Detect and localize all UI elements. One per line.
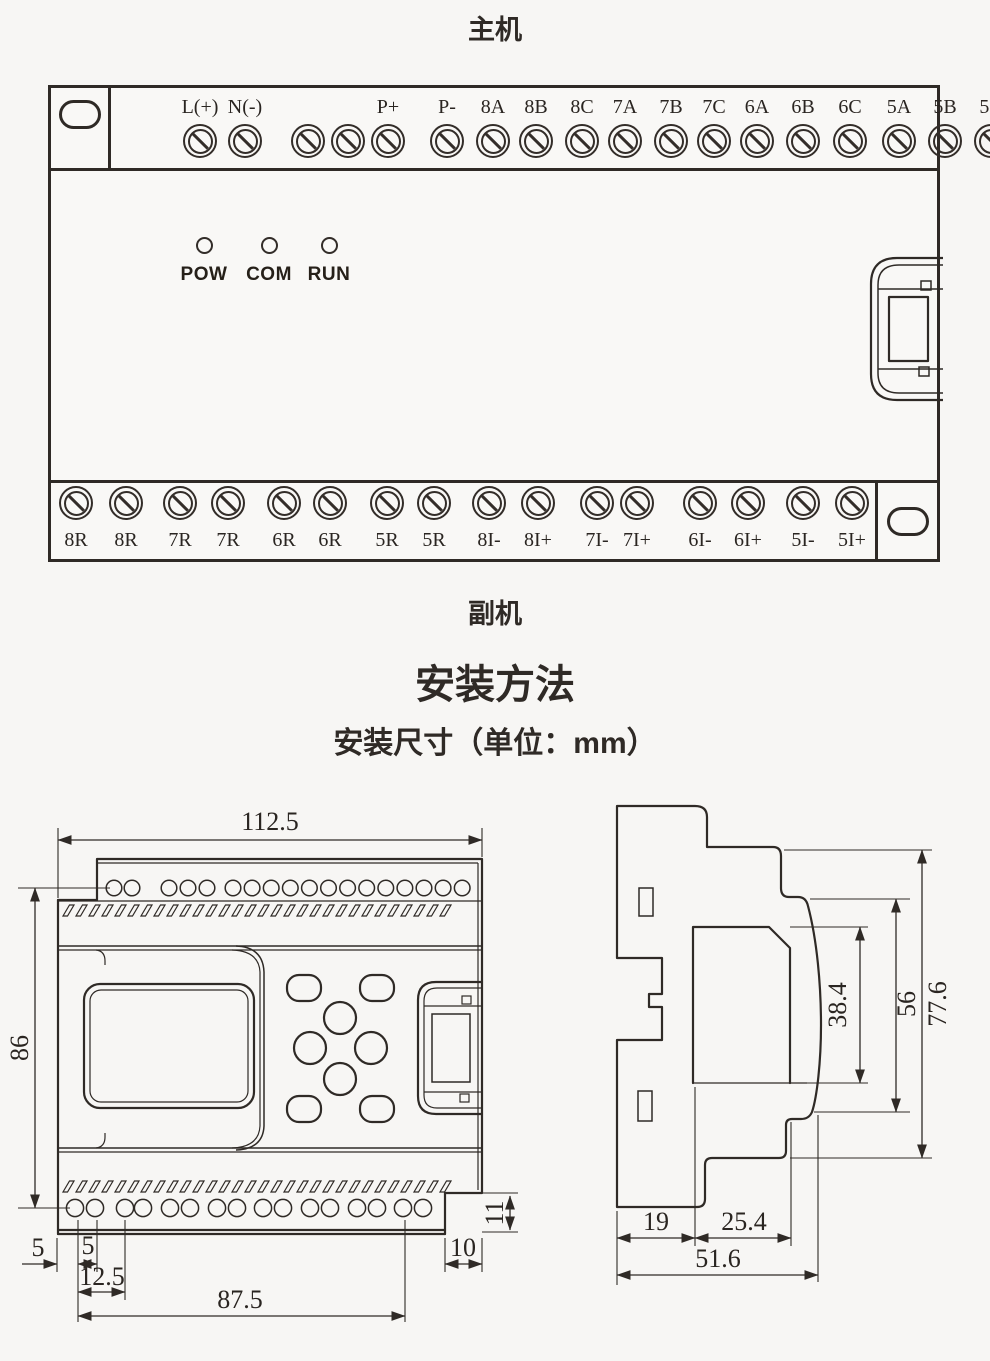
- screw-terminal-icon: [974, 124, 990, 158]
- mount-tab-right: [875, 483, 937, 559]
- terminal-top-6C: 6C: [828, 90, 872, 158]
- terminal-top-7C: 7C: [692, 90, 736, 158]
- dim-height: 86: [10, 888, 110, 1208]
- screw-terminal-icon: [835, 486, 869, 520]
- svg-text:56: 56: [892, 991, 921, 1017]
- terminal-top-6A: 6A: [735, 90, 779, 158]
- dim-depth-group: 19 25.4 51.6: [617, 1087, 818, 1285]
- screw-terminal-icon: [183, 124, 217, 158]
- terminal-bottom-7I+: 7I+: [615, 486, 659, 555]
- led-indicator-pow: POW: [172, 237, 236, 286]
- screw-terminal-icon: [267, 486, 301, 520]
- panel-body: POWCOMRUN: [51, 171, 937, 480]
- terminal-label: 8R: [114, 523, 137, 555]
- terminal-label: 7I-: [585, 523, 608, 555]
- screw-terminal-icon: [211, 486, 245, 520]
- led-label: COM: [246, 264, 292, 286]
- terminal-label: 8I-: [477, 523, 500, 555]
- terminal-bottom-6I-: 6I-: [678, 486, 722, 555]
- svg-text:11: 11: [480, 1200, 509, 1225]
- front-connector: [418, 982, 482, 1114]
- screw-terminal-icon: [683, 486, 717, 520]
- terminal-top-nc: [326, 90, 370, 158]
- led-circle-icon: [261, 237, 278, 254]
- keypad-button: [287, 1096, 321, 1122]
- top-terminal-strip: L(+)N(-)P+P-8A8B8C7A7B7C6A6B6C5A5B5C: [51, 88, 937, 171]
- terminal-bottom-5R: 5R: [365, 486, 409, 555]
- terminal-label: 6R: [272, 523, 295, 555]
- keypad-button: [294, 1032, 326, 1064]
- screw-terminal-icon: [882, 124, 916, 158]
- terminal-label: 7B: [659, 90, 682, 122]
- svg-text:112.5: 112.5: [241, 807, 299, 836]
- terminal-bottom-7R: 7R: [206, 486, 250, 555]
- terminal-bottom-8R: 8R: [54, 486, 98, 555]
- side-view-dimension-drawing: 38.4 56 77.6 19 25.4 51.6: [590, 795, 990, 1361]
- side-view-body: [617, 806, 821, 1207]
- screw-terminal-icon: [928, 124, 962, 158]
- terminal-top-P+: P+: [366, 90, 410, 158]
- screw-terminal-icon: [654, 124, 688, 158]
- mount-tab-left: [51, 88, 111, 168]
- display-window: [84, 984, 254, 1108]
- screw-terminal-icon: [109, 486, 143, 520]
- terminal-label: 7C: [702, 90, 725, 122]
- screw-terminal-icon: [163, 486, 197, 520]
- terminal-bottom-6R: 6R: [262, 486, 306, 555]
- terminal-label: 7A: [613, 90, 637, 122]
- terminal-label: 5C: [979, 90, 990, 122]
- manual-page: { "titles": { "main_unit": "主机", "second…: [0, 0, 990, 1361]
- keypad-button: [355, 1032, 387, 1064]
- keypad-button: [360, 1096, 394, 1122]
- install-method-heading: 安装方法: [0, 652, 990, 710]
- terminal-label: 7R: [168, 523, 191, 555]
- terminal-top-nc: [286, 90, 330, 158]
- terminal-bottom-5I-: 5I-: [781, 486, 825, 555]
- terminal-bottom-7R: 7R: [158, 486, 202, 555]
- keypad-button: [287, 975, 321, 1001]
- svg-text:5: 5: [82, 1231, 95, 1260]
- screw-terminal-icon: [833, 124, 867, 158]
- vent-zigzag-bottom: [63, 1181, 451, 1192]
- screw-terminal-icon: [370, 486, 404, 520]
- terminal-bottom-5R: 5R: [412, 486, 456, 555]
- terminal-label: 7I+: [623, 523, 651, 555]
- terminal-label: 8I+: [524, 523, 552, 555]
- front-face-profile: [693, 927, 790, 1083]
- screw-terminal-icon: [476, 124, 510, 158]
- screw-terminal-icon: [608, 124, 642, 158]
- screw-terminal-icon: [519, 124, 553, 158]
- terminal-label: 5R: [375, 523, 398, 555]
- terminal-top-5C: 5C: [969, 90, 990, 158]
- terminal-top-7A: 7A: [603, 90, 647, 158]
- keypad-button: [324, 1002, 356, 1034]
- mount-hole-icon: [887, 507, 929, 536]
- keypad: [287, 975, 394, 1122]
- screw-terminal-icon: [786, 124, 820, 158]
- dim-inner-height: 38.4: [790, 927, 868, 1083]
- screw-terminal-icon: [331, 124, 365, 158]
- screw-terminal-icon: [313, 486, 347, 520]
- controller-panel: L(+)N(-)P+P-8A8B8C7A7B7C6A6B6C5A5B5C POW…: [48, 85, 940, 562]
- screw-terminal-icon: [786, 486, 820, 520]
- led-circle-icon: [196, 237, 213, 254]
- svg-text:38.4: 38.4: [823, 982, 852, 1028]
- screw-terminal-icon: [580, 486, 614, 520]
- svg-text:25.4: 25.4: [721, 1207, 767, 1236]
- terminal-bottom-5I+: 5I+: [830, 486, 874, 555]
- secondary-unit-title: 副机: [0, 592, 990, 631]
- terminal-top-N(-): N(-): [223, 90, 267, 158]
- terminal-top-8B: 8B: [514, 90, 558, 158]
- screw-terminal-icon: [59, 486, 93, 520]
- screw-terminal-icon: [620, 486, 654, 520]
- terminal-top-5A: 5A: [877, 90, 921, 158]
- bottom-terminal-strip: 8R8R7R7R6R6R5R5R8I-8I+7I-7I+6I-6I+5I-5I+: [51, 480, 937, 559]
- svg-text:86: 86: [10, 1035, 34, 1061]
- terminal-label: P-: [438, 90, 456, 122]
- led-label: POW: [181, 264, 228, 286]
- expansion-connector-icon: [864, 254, 943, 404]
- screw-terminal-icon: [521, 486, 555, 520]
- screw-terminal-icon: [472, 486, 506, 520]
- screw-terminal-icon: [430, 124, 464, 158]
- front-top-terminal-holes: [106, 880, 470, 896]
- terminal-label: 8A: [481, 90, 505, 122]
- led-label: RUN: [308, 264, 351, 286]
- vent-zigzag-top: [63, 905, 451, 916]
- main-unit-title: 主机: [0, 8, 990, 47]
- terminal-top-6B: 6B: [781, 90, 825, 158]
- front-view-dimension-drawing: 112.5 86 5 5 12.5 87.5 10 11: [10, 795, 545, 1361]
- terminal-top-8C: 8C: [560, 90, 604, 158]
- svg-text:10: 10: [450, 1233, 476, 1262]
- terminal-top-L(+): L(+): [178, 90, 222, 158]
- screw-terminal-icon: [417, 486, 451, 520]
- terminal-top-8A: 8A: [471, 90, 515, 158]
- terminal-label: 5A: [887, 90, 911, 122]
- svg-text:87.5: 87.5: [217, 1285, 263, 1314]
- terminal-label: 5I-: [791, 523, 814, 555]
- terminal-bottom-8R: 8R: [104, 486, 148, 555]
- keypad-button: [360, 975, 394, 1001]
- terminal-label: 6B: [791, 90, 814, 122]
- terminal-top-5B: 5B: [923, 90, 967, 158]
- terminal-label: 8C: [570, 90, 593, 122]
- screw-terminal-icon: [291, 124, 325, 158]
- terminal-label: 7R: [216, 523, 239, 555]
- install-size-subheading: 安装尺寸（单位：mm）: [0, 718, 990, 762]
- vent-slot: [638, 1091, 652, 1121]
- svg-text:12.5: 12.5: [79, 1262, 125, 1291]
- screw-terminal-icon: [565, 124, 599, 158]
- terminal-label: 8B: [524, 90, 547, 122]
- led-indicator-run: RUN: [297, 237, 361, 286]
- terminal-label: 5R: [422, 523, 445, 555]
- terminal-label: 5I+: [838, 523, 866, 555]
- svg-text:5: 5: [32, 1233, 45, 1262]
- screw-terminal-icon: [731, 486, 765, 520]
- terminal-bottom-6R: 6R: [308, 486, 352, 555]
- terminal-label: P+: [377, 90, 399, 122]
- terminal-label: 6I-: [688, 523, 711, 555]
- svg-text:19: 19: [643, 1207, 669, 1236]
- terminal-top-P-: P-: [425, 90, 469, 158]
- terminal-label: L(+): [182, 90, 219, 122]
- terminal-label: 6A: [745, 90, 769, 122]
- led-indicator-com: COM: [237, 237, 301, 286]
- terminal-bottom-7I-: 7I-: [575, 486, 619, 555]
- svg-text:77.6: 77.6: [923, 981, 952, 1027]
- terminal-label: 6C: [838, 90, 861, 122]
- terminal-label: 6I+: [734, 523, 762, 555]
- screw-terminal-icon: [740, 124, 774, 158]
- screw-terminal-icon: [697, 124, 731, 158]
- terminal-label: N(-): [228, 90, 262, 122]
- top-terminal-row: L(+)N(-)P+P-8A8B8C7A7B7C6A6B6C5A5B5C: [111, 88, 937, 168]
- screw-terminal-icon: [371, 124, 405, 158]
- terminal-label: 8R: [64, 523, 87, 555]
- vent-slot: [639, 888, 653, 916]
- screw-terminal-icon: [228, 124, 262, 158]
- terminal-bottom-8I-: 8I-: [467, 486, 511, 555]
- terminal-bottom-8I+: 8I+: [516, 486, 560, 555]
- led-circle-icon: [321, 237, 338, 254]
- keypad-button: [324, 1063, 356, 1095]
- terminal-label: 5B: [933, 90, 956, 122]
- terminal-top-7B: 7B: [649, 90, 693, 158]
- mount-hole-icon: [59, 100, 101, 129]
- terminal-bottom-6I+: 6I+: [726, 486, 770, 555]
- terminal-label: 6R: [318, 523, 341, 555]
- front-bottom-terminal-holes: [66, 1199, 431, 1216]
- svg-text:51.6: 51.6: [695, 1244, 741, 1273]
- bottom-terminal-row: 8R8R7R7R6R6R5R5R8I-8I+7I-7I+6I-6I+5I-5I+: [51, 483, 875, 559]
